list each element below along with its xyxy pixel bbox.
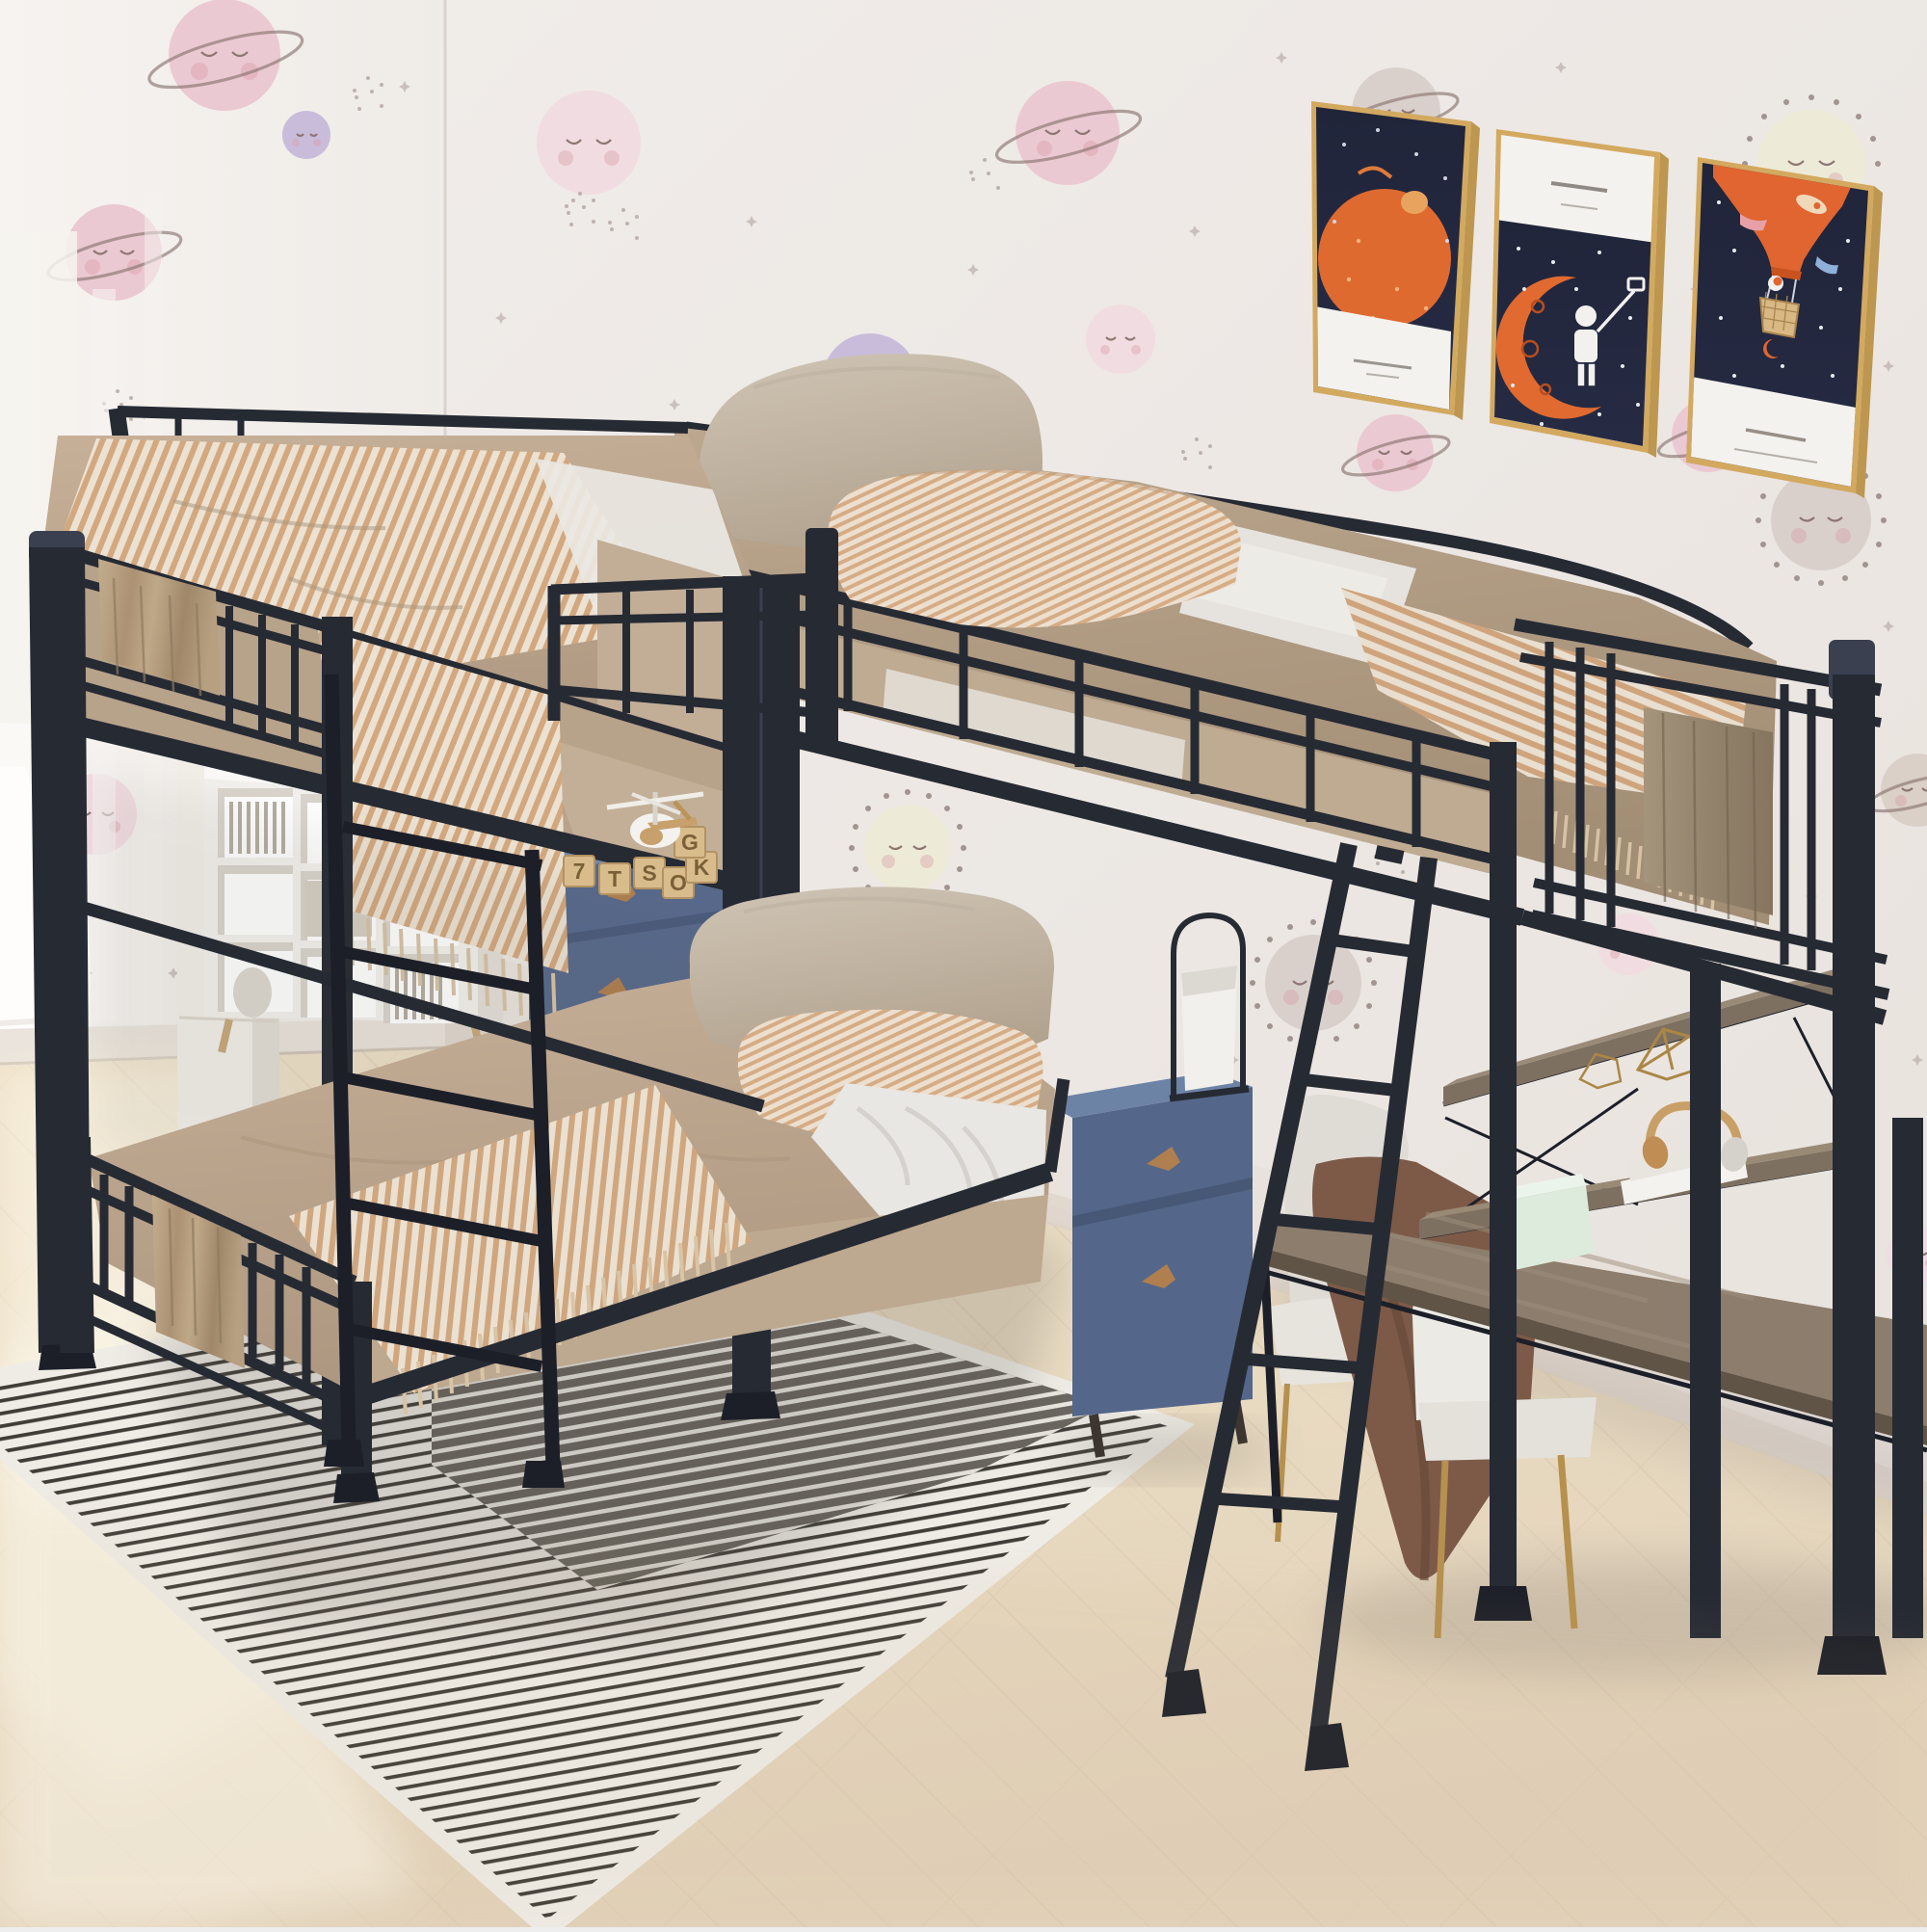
svg-text:7: 7 [573, 859, 586, 884]
svg-text:T: T [608, 866, 621, 891]
svg-text:S: S [642, 860, 656, 886]
svg-text:O: O [670, 870, 687, 895]
svg-text:G: G [681, 830, 699, 855]
